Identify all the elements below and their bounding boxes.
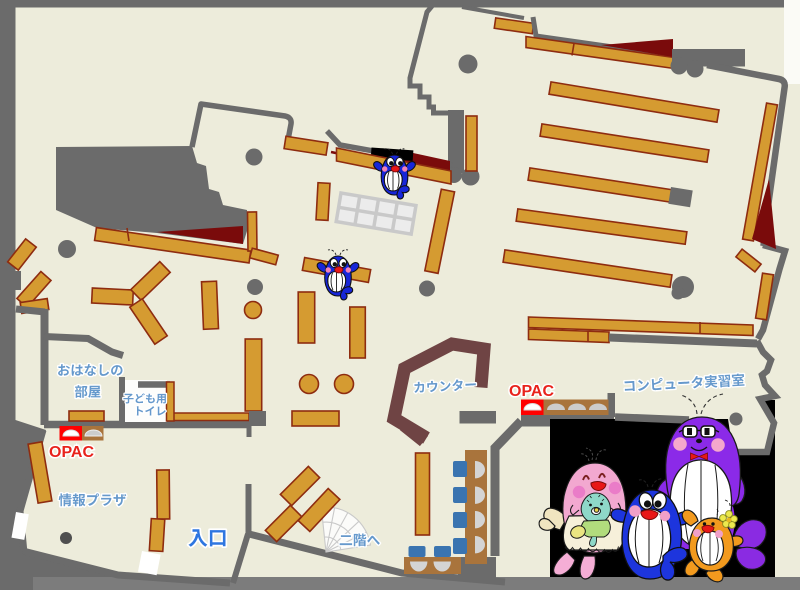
svg-text:OPAC: OPAC	[509, 383, 554, 400]
svg-text:OPAC: OPAC	[49, 444, 94, 461]
